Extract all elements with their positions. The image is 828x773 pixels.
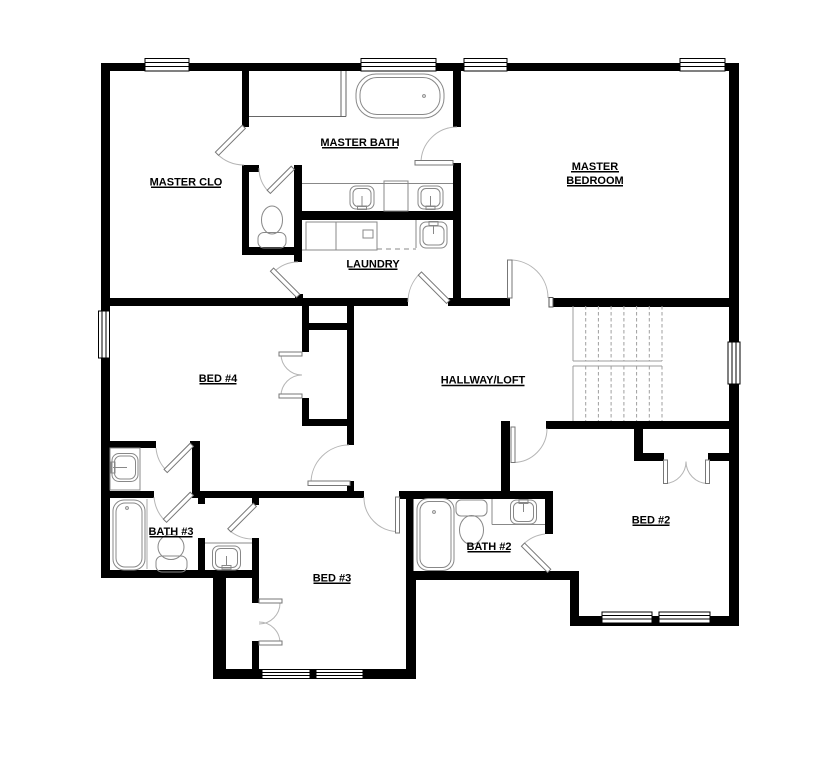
- svg-text:HALLWAY/LOFT: HALLWAY/LOFT: [441, 375, 526, 387]
